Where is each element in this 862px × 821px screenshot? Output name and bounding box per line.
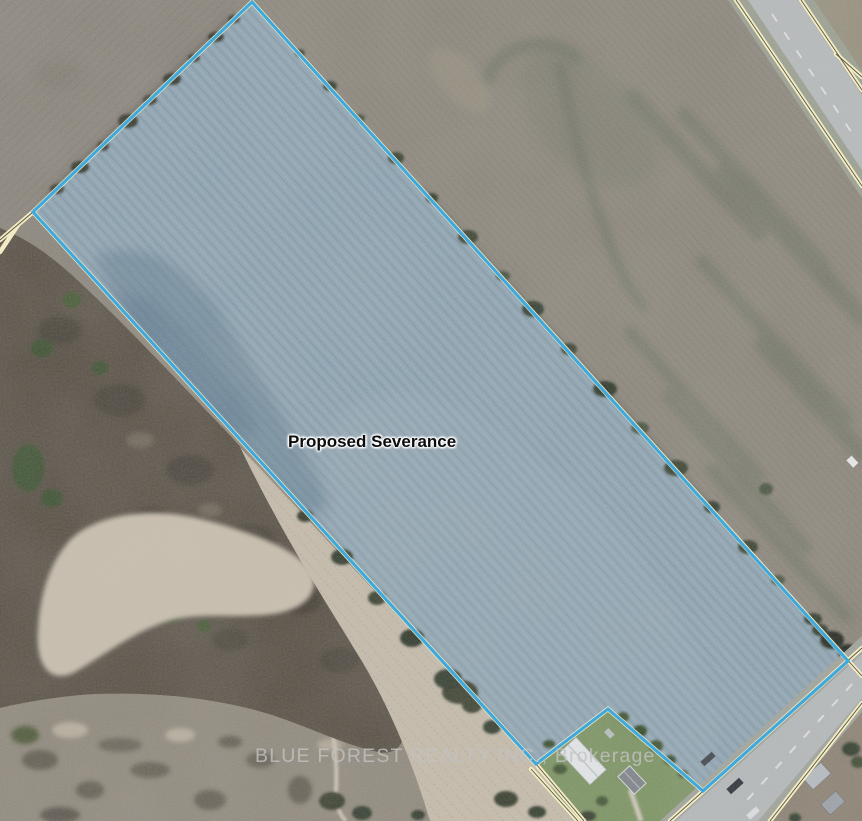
aerial-map: Proposed Severance BLUE FOREST REALTY IN… [0, 0, 862, 821]
brokerage-watermark: BLUE FOREST REALTY INC., Brokerage [255, 745, 656, 768]
parcel-label: Proposed Severance [288, 432, 456, 452]
satellite-image [0, 0, 862, 821]
photo-grain [0, 0, 862, 821]
